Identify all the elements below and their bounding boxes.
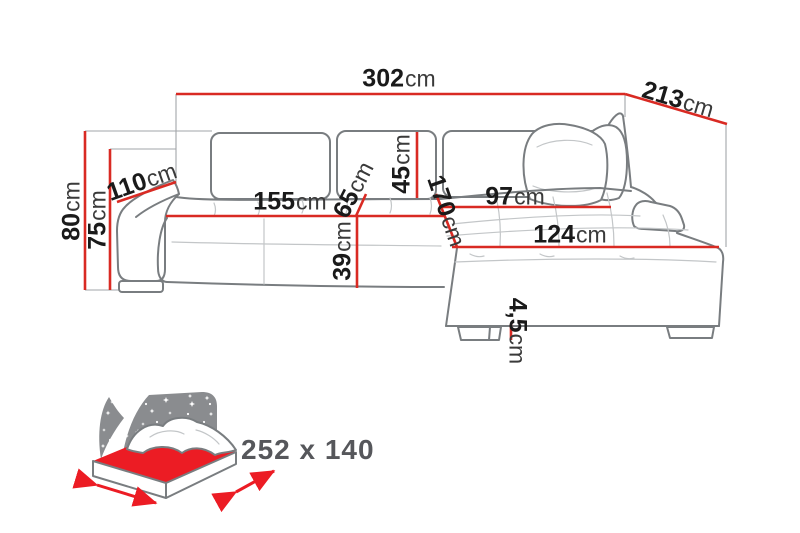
- sleeping-area-size: 252 x 140: [241, 436, 375, 464]
- pillow-front: [523, 124, 607, 206]
- dim-line-chaise-length: [436, 194, 457, 247]
- front-bottom-edge: [167, 282, 444, 287]
- dim-line-total-depth: [625, 94, 727, 124]
- diagram-graphic: [0, 0, 800, 533]
- chaise-left-edge: [446, 248, 457, 326]
- back-cushion-middle: [337, 131, 436, 199]
- sofa-dimension-diagram: 302cm 213cm 80cm 75cm 110cm 155cm 65cm 4…: [0, 0, 800, 533]
- left-arm-foot: [119, 281, 163, 292]
- sofa-outline: [117, 113, 723, 340]
- chaise-leg-left: [458, 327, 501, 340]
- bed-length-arrow: [236, 471, 274, 492]
- left-arm: [117, 180, 179, 281]
- back-cushion-left: [211, 133, 330, 199]
- chaise-leg-right: [667, 327, 714, 338]
